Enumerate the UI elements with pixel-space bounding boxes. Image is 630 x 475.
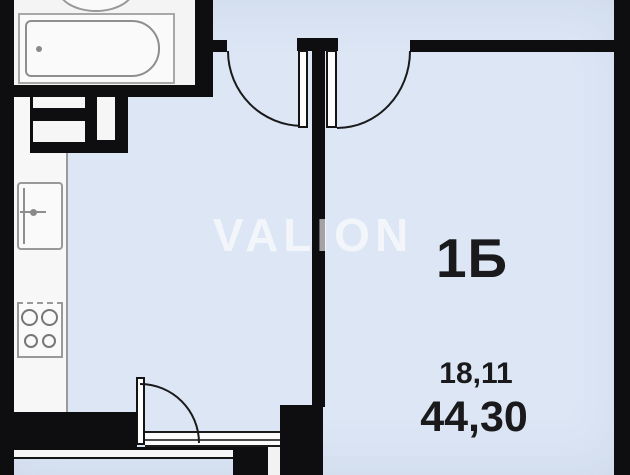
room-door-leaf-icon — [326, 50, 337, 128]
wall-left — [0, 0, 14, 475]
wall-balcony-right — [233, 447, 268, 475]
room-area-label: 18,11 — [426, 359, 526, 389]
watermark-text: VALION — [163, 212, 463, 258]
wall-bathroom-divider — [195, 0, 213, 97]
wall-gap-sliver — [268, 447, 280, 475]
vent-cell — [33, 121, 85, 142]
balcony-parapet — [14, 450, 233, 459]
faucet-icon — [30, 209, 37, 216]
burner-icon — [21, 309, 38, 326]
entry-door-leaf-icon — [298, 50, 308, 128]
wall-right — [614, 0, 630, 475]
floor-plan: VALION 1Б 18,11 44,30 — [0, 0, 630, 475]
wall-top-right — [410, 40, 630, 52]
balcony-door-arc-icon — [140, 383, 200, 443]
bathtub-drain-icon — [36, 46, 42, 52]
sink-divider-line — [23, 188, 25, 244]
bathtub-inner-icon — [25, 20, 160, 77]
wall-corner-block — [280, 405, 323, 475]
room-door-arc-icon — [337, 51, 411, 129]
burner-icon — [41, 309, 58, 326]
vent-cell — [97, 92, 115, 140]
burner-icon — [24, 334, 38, 348]
wall-kitchen-bottom — [0, 412, 137, 447]
wall-bathroom-bottom — [14, 85, 213, 97]
total-area-label: 44,30 — [399, 396, 549, 439]
entry-door-arc-icon — [227, 51, 303, 127]
burner-icon — [42, 334, 56, 348]
wall-stub-left — [213, 40, 227, 52]
